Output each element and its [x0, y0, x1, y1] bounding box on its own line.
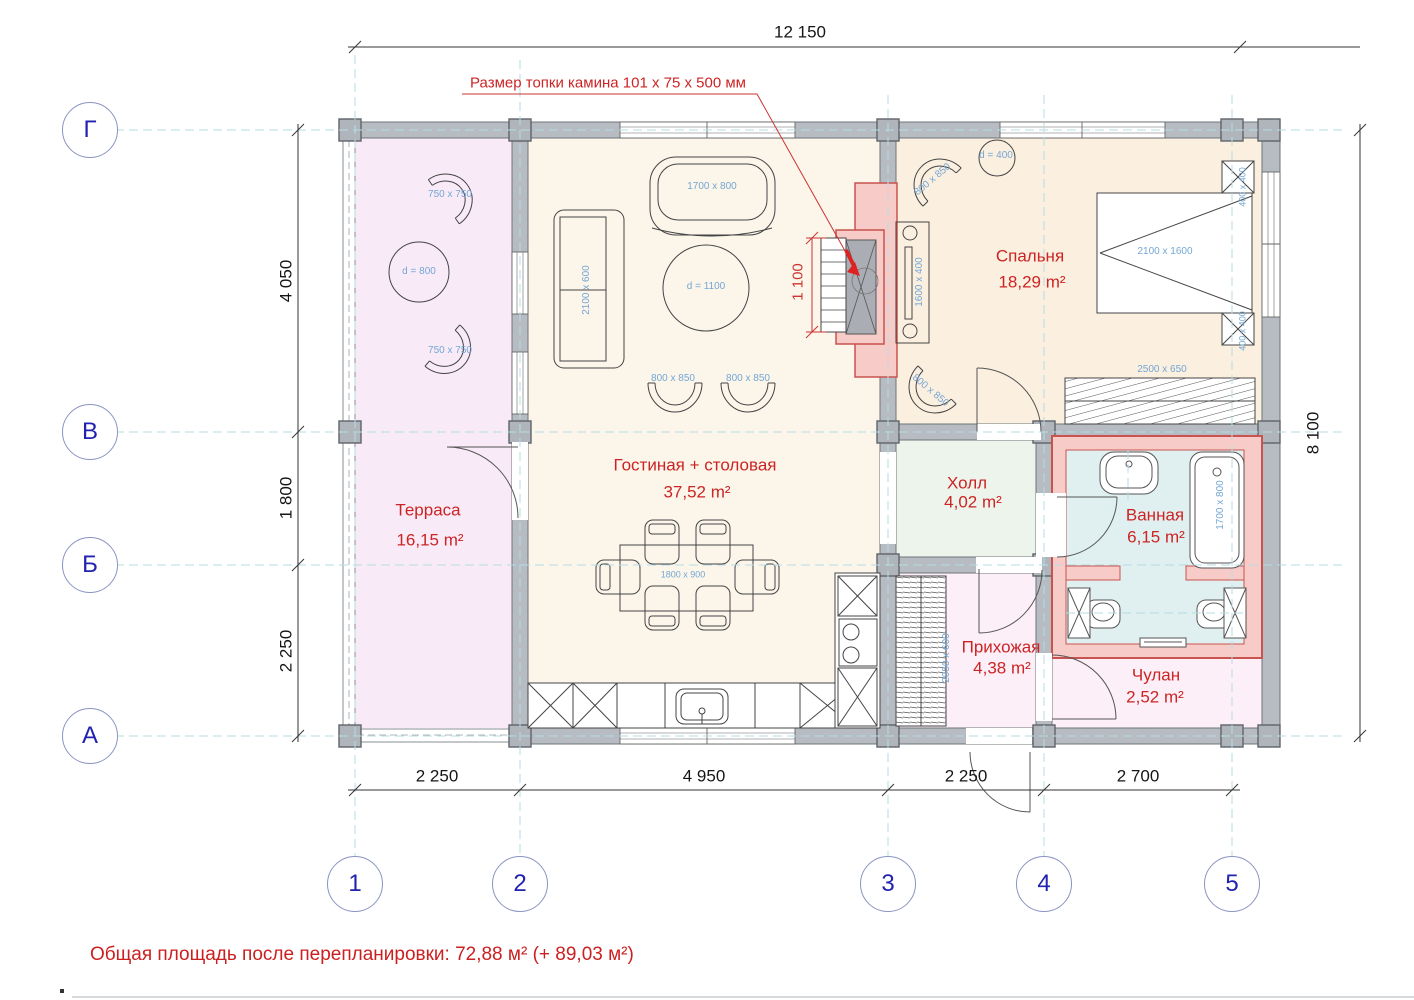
grid-row-label: В [82, 418, 98, 446]
label-armchair-left: 800 x 850 [651, 374, 695, 384]
grid-col-label: 3 [881, 870, 894, 898]
room-area-closet: 2,52 m² [1126, 689, 1184, 706]
bath-sink [1100, 452, 1158, 494]
dim-top-total: 12 150 [774, 24, 826, 41]
fireplace-firebox-dim: 1 100 [791, 263, 806, 301]
floorplan-page: { "annotation": { "fireplace_note": "Раз… [0, 0, 1414, 1000]
room-label-terrace: Терраса [395, 502, 460, 519]
grid-row-label: А [82, 722, 98, 750]
room-area-bathroom: 6,15 m² [1127, 529, 1185, 546]
grid-bubble-col-3: 3 [860, 856, 916, 912]
label-bedroom-side-table: d = 400 [979, 151, 1013, 161]
grid-bubble-col-4: 4 [1016, 856, 1072, 912]
grid-row-label: Б [82, 551, 98, 579]
bath-shelf [1140, 638, 1186, 647]
room-label-living: Гостиная + столовая [614, 457, 777, 474]
label-coffee-table: d = 1100 [687, 282, 725, 292]
grid-bubble-row-a: А [62, 708, 118, 764]
label-sofa-left: 2100 x 600 [582, 265, 592, 315]
room-label-bathroom: Ванная [1126, 507, 1184, 524]
label-terrace-chair-bottom: 750 x 750 [428, 346, 472, 356]
label-entry-wardrobe: 2050 x 600 [942, 633, 952, 683]
label-bed-pillow-top: 400 x 400 [1239, 167, 1248, 207]
grid-row-label: Г [84, 116, 97, 144]
kitchen-stove [839, 619, 877, 666]
fireplace-grill [821, 238, 846, 332]
grid-col-label: 4 [1037, 870, 1050, 898]
label-armchair-right: 800 x 850 [726, 374, 770, 384]
grid-bubble-row-v: В [62, 404, 118, 460]
dim-right-total: 8 100 [1305, 412, 1322, 455]
room-label-bedroom: Спальня [996, 248, 1064, 265]
page-bottom-rule [72, 996, 1414, 998]
room-label-closet: Чулан [1132, 667, 1180, 684]
fireplace-note: Размер топки камина 101 x 75 x 500 мм [470, 76, 746, 91]
grid-bubble-col-5: 5 [1204, 856, 1260, 912]
room-label-hall: Холл [947, 475, 987, 492]
label-terrace-chair-top: 750 x 750 [428, 190, 472, 200]
grid-col-label: 2 [513, 870, 526, 898]
grid-bubble-col-2: 2 [492, 856, 548, 912]
dim-bottom-2: 4 950 [683, 768, 726, 785]
grid-bubble-col-1: 1 [327, 856, 383, 912]
label-terrace-table: d = 800 [402, 267, 436, 277]
dim-left-3: 2 250 [278, 630, 295, 673]
label-bathtub: 1700 x 800 [1216, 480, 1226, 530]
label-bed: 2100 x 1600 [1137, 247, 1192, 257]
label-bedroom-wardrobe: 2500 x 650 [1137, 365, 1187, 375]
room-area-hall: 4,02 m² [944, 494, 1002, 511]
dim-left-1: 4 050 [278, 260, 295, 303]
label-dining-table: 1800 x 900 [661, 571, 706, 580]
kitchen-sink [676, 689, 728, 724]
total-area-summary: Общая площадь после перепланировки: 72,8… [90, 944, 634, 966]
bath-divider-left [1066, 566, 1120, 580]
grid-col-label: 1 [348, 870, 361, 898]
toilet-left [1086, 600, 1120, 628]
dim-bottom-4: 2 700 [1117, 768, 1160, 785]
room-area-living: 37,52 m² [663, 484, 730, 501]
page-corner-mark [60, 989, 64, 993]
bedroom-wardrobe [1065, 378, 1255, 424]
dim-bottom-1: 2 250 [416, 768, 459, 785]
dim-left-2: 1 800 [278, 477, 295, 520]
label-bedroom-desk: 1600 x 400 [915, 257, 925, 307]
entry-wardrobe [896, 576, 946, 726]
room-area-entry: 4,38 m² [973, 660, 1031, 677]
room-terrace [355, 138, 512, 728]
room-label-entry: Прихожая [962, 639, 1041, 656]
window-bedroom-right [1262, 172, 1280, 317]
label-sofa-top: 1700 x 800 [687, 182, 737, 192]
grid-bubble-row-b: Б [62, 537, 118, 593]
label-bed-pillow-bottom: 400 x 400 [1239, 311, 1248, 351]
dim-bottom-3: 2 250 [945, 768, 988, 785]
room-area-terrace: 16,15 m² [396, 532, 463, 549]
room-area-bedroom: 18,29 m² [998, 274, 1065, 291]
grid-col-label: 5 [1225, 870, 1238, 898]
grid-bubble-row-g: Г [62, 102, 118, 158]
room-living-dining [528, 138, 880, 728]
